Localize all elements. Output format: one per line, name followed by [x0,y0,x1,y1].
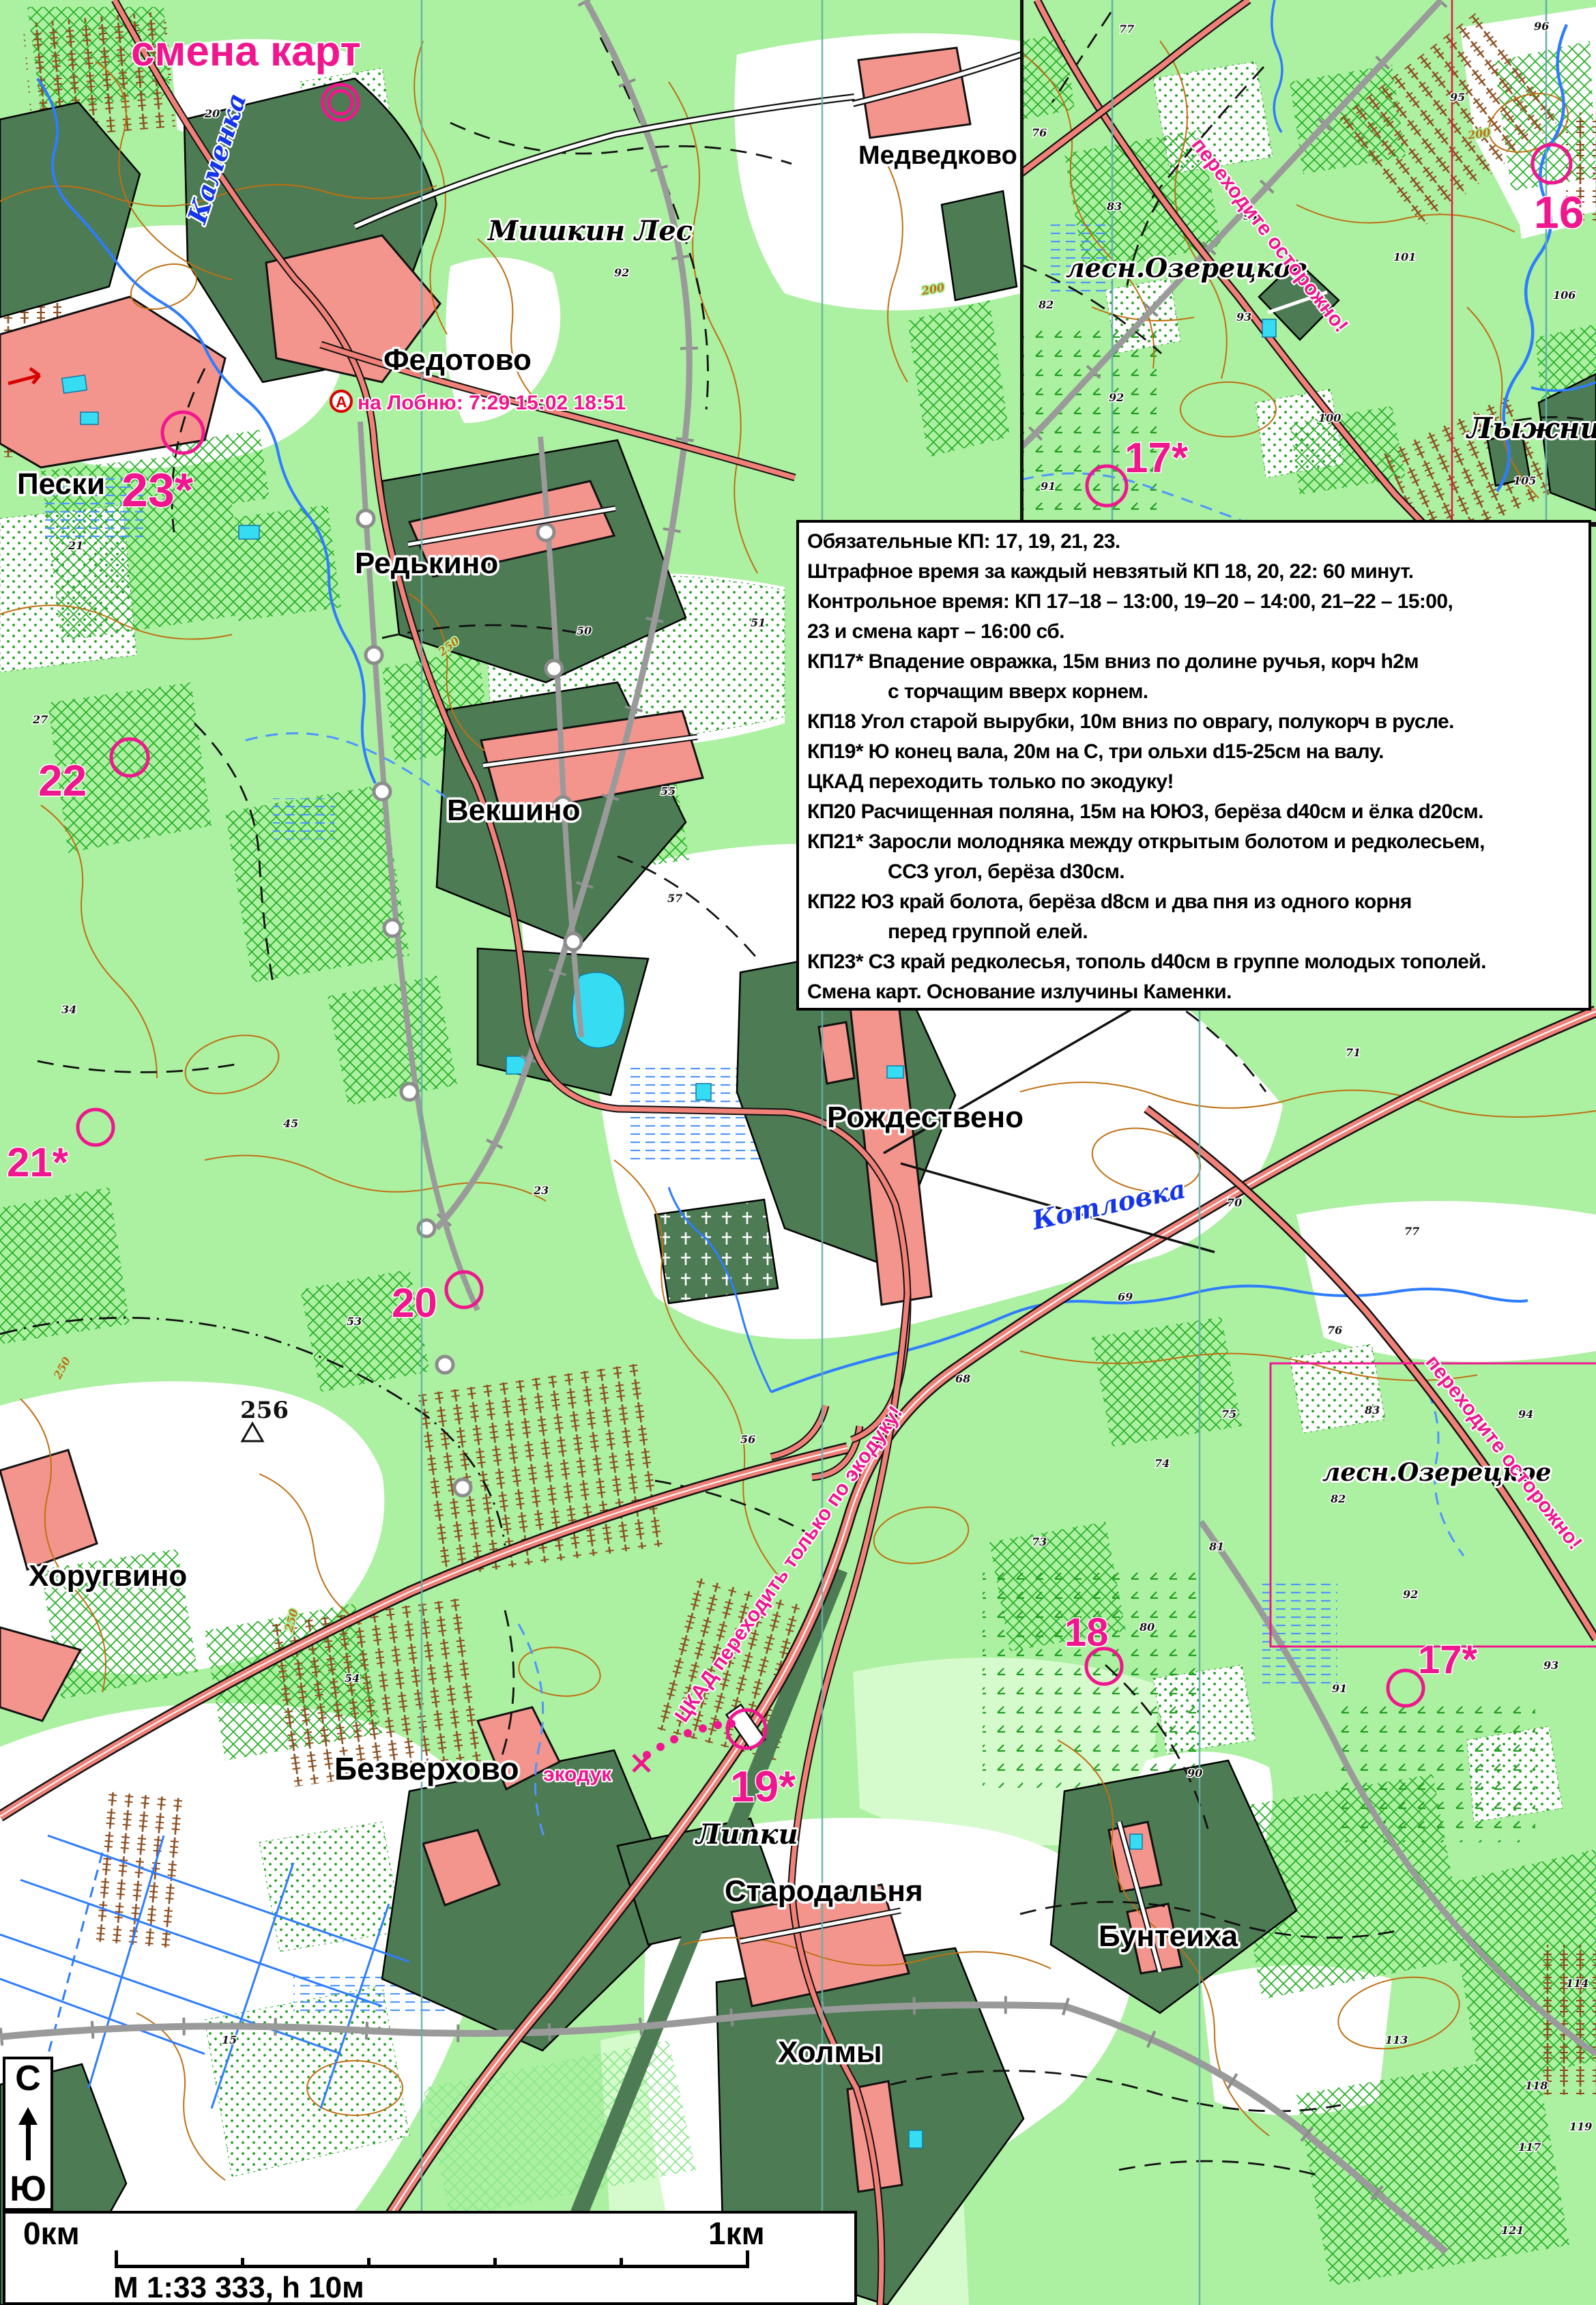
instruction-line: КП23* СЗ край редколесья, тополь d40см в… [807,947,1580,977]
instruction-line: Контрольное время: КП 17–18 – 13:00, 19–… [807,587,1580,617]
spot-height-label: 91 [1332,1682,1347,1695]
control-number-label: 20 [392,1280,437,1326]
bus-schedule-note: на Лобню: 7:29 15:02 18:51 [358,392,626,414]
spot-height-label: 51 [751,616,766,629]
settlement-label: Медведково [858,141,1017,170]
trig-point-label: 256 [240,1397,289,1424]
spot-height-label: 70 [1227,1196,1242,1209]
spot-height-label: 45 [283,1117,298,1130]
bus-stop-letter: А [336,393,347,411]
instruction-line: перед группой елей. [807,917,1580,947]
spot-height-label: 20 [204,107,220,120]
ecoduct-label: экодук [543,1763,612,1786]
spot-height-label: 113 [1385,2033,1408,2046]
spot-height-label: 95 [1450,91,1465,104]
scale-caption: М 1:33 333, h 10м [113,2271,364,2305]
control-number-label: 17* [1418,1638,1478,1682]
control-number-label: 23* [121,463,194,517]
spot-height-label: 92 [614,266,629,279]
spot-height-label: 21 [68,539,83,552]
locality-label: Мишкин Лес [487,215,693,247]
spot-height-label: 73 [1032,1535,1047,1548]
spot-height-label: 105 [1513,474,1536,487]
compass-box: С Ю [3,2057,53,2211]
instruction-line: ССЗ угол, берёза d30см. [807,857,1580,887]
spot-height-label: 117 [1518,2141,1541,2154]
spot-height-label: 76 [1327,1324,1342,1337]
spot-height-label: 114 [1566,1977,1588,1990]
spot-height-label: 92 [1403,1588,1418,1601]
spot-height-label: 92 [1109,391,1124,404]
instruction-line: Штрафное время за каждый невзятый КП 18,… [807,557,1580,587]
spot-height-label: 106 [1553,289,1576,302]
spot-height-label: 81 [1208,1540,1224,1553]
settlement-label: Безверхово [334,1751,519,1786]
spot-height-label: 91 [1041,480,1056,493]
scale-end-label: 1км [708,2215,765,2252]
spot-height-label: 54 [345,1672,360,1685]
instruction-line: КП20 Расчищенная поляна, 15м на ЮЮЗ, бер… [807,797,1580,827]
spot-height-label: 94 [1518,1408,1533,1421]
spot-height-label: 27 [32,713,48,726]
instruction-line: КП19* Ю конец вала, 20м на С, три ольхи … [807,737,1580,767]
spot-height-label: 118 [1525,2079,1548,2092]
spot-height-label: 80 [1139,1621,1155,1634]
instruction-line: КП17* Впадение овражка, 15м вниз по доли… [807,647,1580,677]
map-change-label: смена карт [131,28,361,75]
orienteering-map-page: 256 МедведковоФедотовоПескиРедькиноВекши… [0,0,1596,2305]
settlement-label: Федотово [383,343,532,377]
spot-height-label: 90 [1187,1767,1202,1780]
spot-height-label: 71 [1346,1046,1361,1059]
scale-start-label: 0км [23,2215,80,2252]
instruction-line: КП21* Заросли молодняка между открытым б… [807,827,1580,857]
settlement-label: Пески [17,467,105,501]
course-instructions-box: Обязательные КП: 17, 19, 21, 23.Штрафное… [796,520,1591,1011]
settlement-label: Хоругвино [29,1559,187,1593]
instruction-line: ЦКАД переходить только по экодуку! [807,767,1580,797]
settlement-label: Рождествено [827,1101,1024,1134]
spot-height-label: 75 [1221,1408,1236,1421]
spot-height-label: 100 [1318,411,1341,424]
spot-height-label: 56 [740,1433,755,1446]
course-instructions-lines: Обязательные КП: 17, 19, 21, 23.Штрафное… [807,527,1580,1007]
spot-height-label: 53 [347,1315,362,1328]
spot-height-label: 77 [1119,23,1134,35]
control-number-label: 21* [7,1140,69,1185]
instruction-line: с торчащим вверх корнем. [807,677,1580,707]
spot-height-label: 119 [1569,2120,1592,2133]
inset-pond [1262,319,1276,337]
north-arrow-icon [18,2107,38,2160]
scale-ruler [115,2250,749,2268]
spot-height-label: 15 [222,2033,237,2046]
spot-height-label: 82 [1038,298,1054,311]
spot-height-label: 68 [955,1372,970,1385]
settlement-label: Редькино [355,547,498,580]
spot-height-label: 50 [577,624,592,637]
control-number-label: 17* [1125,435,1189,482]
spot-height-label: 34 [61,1003,76,1016]
spot-height-label: 83 [1364,1404,1380,1417]
spot-height-label: 76 [1032,126,1047,139]
spot-height-label: 96 [1534,20,1549,33]
control-number-label: 22 [38,756,87,805]
locality-label: Липки [695,1818,798,1851]
settlement-label: Векшино [447,794,580,827]
spot-height-label: 57 [667,892,682,905]
spot-height-label: 69 [1118,1290,1133,1303]
spot-height-label: 74 [1155,1457,1170,1470]
spot-height-label: 83 [1106,200,1122,213]
spot-height-label: 93 [1543,1659,1558,1672]
map-canvas: 256 МедведковоФедотовоПескиРедькиноВекши… [0,0,1596,2305]
instruction-line: 23 и смена карт – 16:00 сб. [807,617,1580,647]
settlement-label: Стародальня [725,1874,923,1908]
scale-bar-box: 0км 1км М 1:33 333, h 10м [3,2211,857,2305]
locality-label: Лыжник [1466,411,1596,445]
control-number-label: 19* [730,1762,796,1811]
instruction-line: КП22 ЮЗ край болота, берёза d8см и два п… [807,887,1580,917]
spot-height-label: 82 [1330,1492,1346,1505]
control-number-label: 16 [1534,187,1584,237]
control-number-label: 18 [1064,1610,1109,1655]
spot-height-label: 23 [533,1184,549,1197]
settlement-label: Бунтеиха [1099,1919,1238,1953]
spot-height-label: 101 [1393,250,1416,263]
forestry-label: лесн.Озерецкое [1066,252,1307,283]
spot-height-label: 93 [1236,310,1251,323]
instruction-line: КП18 Угол старой вырубки, 10м вниз по ов… [807,707,1580,737]
compass-south-label: Ю [10,2171,46,2207]
instruction-line: Смена карт. Основание излучины Каменки. [807,977,1580,1007]
spot-height-label: 121 [1501,2224,1524,2237]
spot-height-label: 55 [661,785,676,798]
spot-height-label: 77 [1404,1225,1419,1238]
instruction-line: Обязательные КП: 17, 19, 21, 23. [807,527,1580,557]
compass-north-label: С [15,2061,41,2096]
settlement-label: Холмы [778,2035,882,2069]
